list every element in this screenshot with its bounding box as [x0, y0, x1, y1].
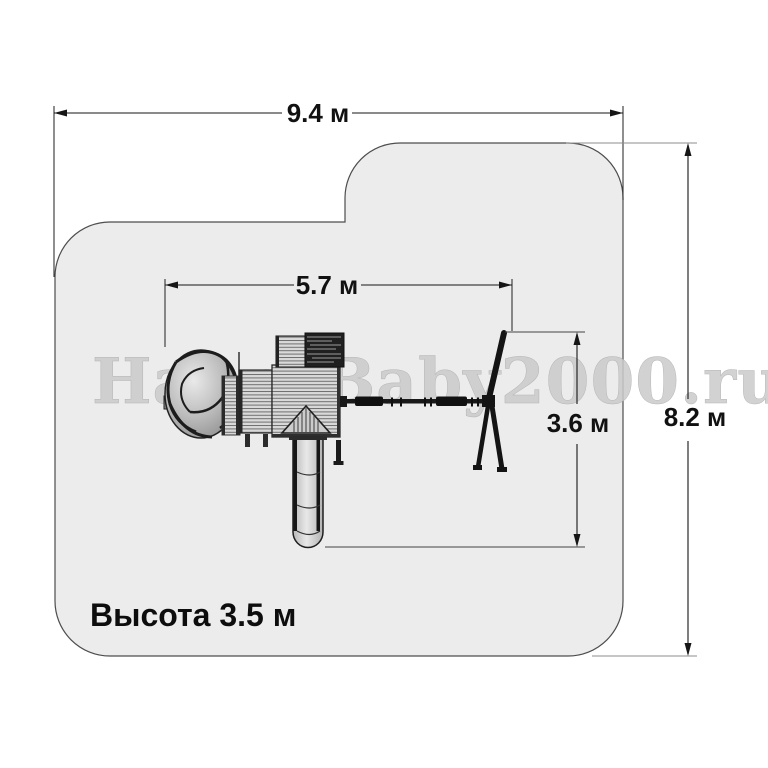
plan-drawing: HappyBaby2000.ru [0, 0, 768, 768]
equipment-length-label: 5.7 м [296, 270, 359, 300]
swing-depth-label: 3.6 м [547, 408, 610, 438]
ladder-section [276, 336, 305, 367]
equipment-height-note: Высота 3.5 м [90, 597, 296, 633]
total-width-label: 9.4 м [287, 98, 350, 128]
main-tower-deck [272, 365, 341, 437]
drawing-canvas: HappyBaby2000.ru [0, 0, 768, 768]
total-height-label: 8.2 м [664, 402, 727, 432]
climbing-wall-icon [305, 333, 344, 367]
